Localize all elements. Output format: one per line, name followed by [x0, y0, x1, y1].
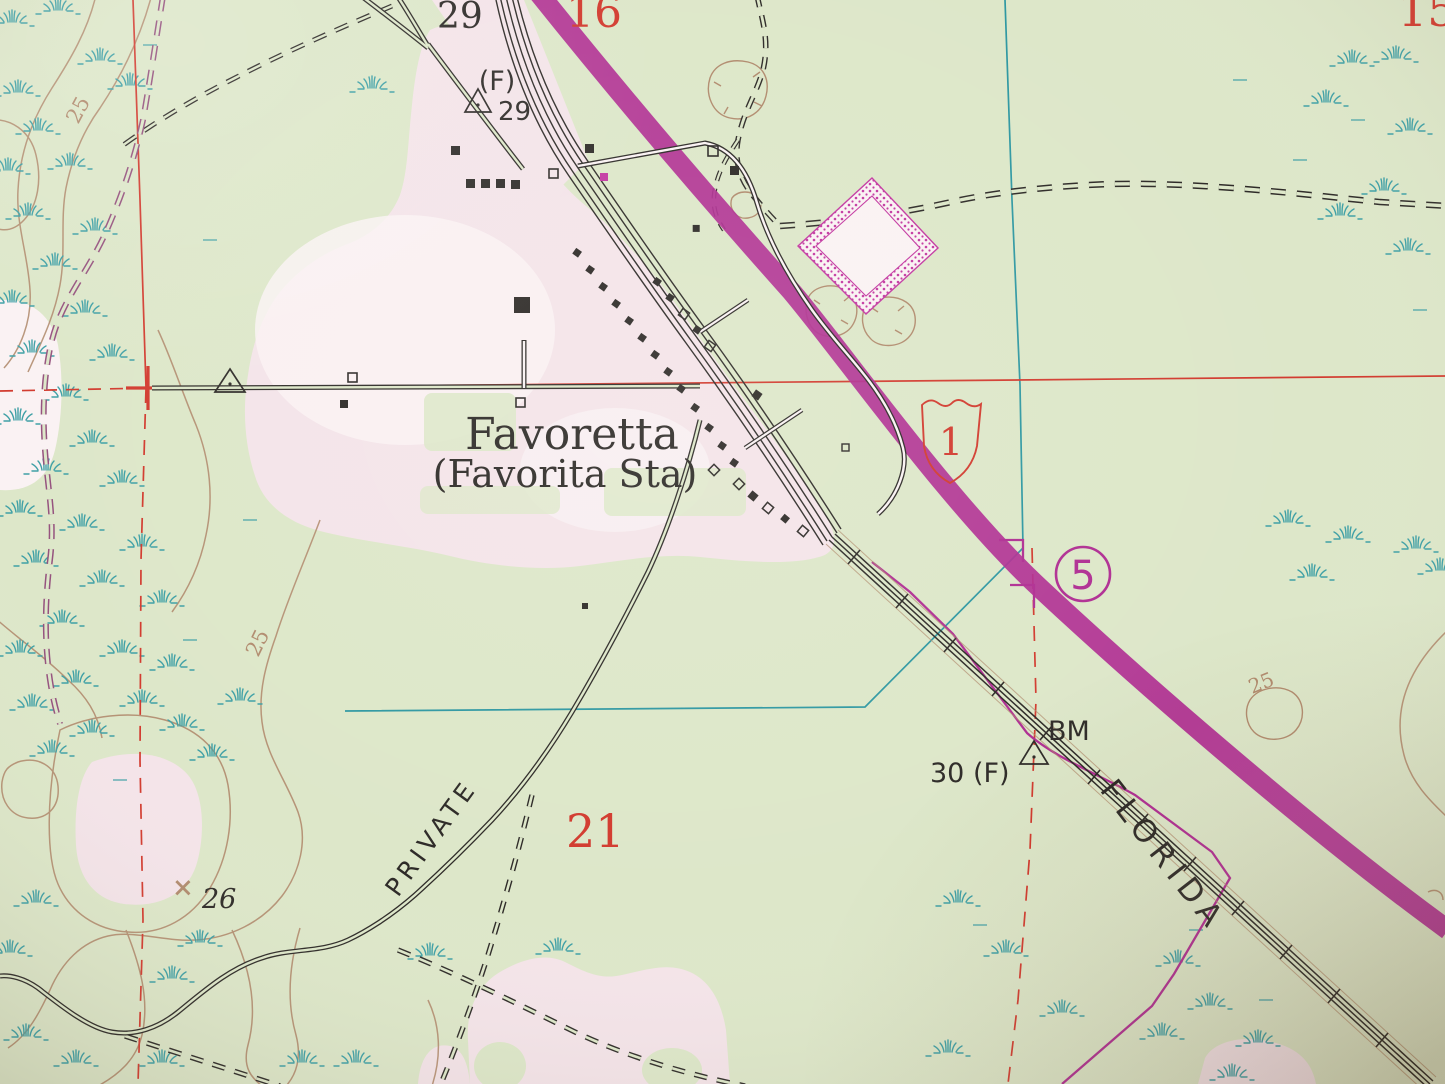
section-15: 15: [1398, 0, 1445, 37]
topo-map: 1 5 Favoretta (Favorita Sta) PRIVATE FLO…: [0, 0, 1445, 1084]
section-21: 21: [566, 804, 625, 858]
place-alt-label: (Favorita Sta): [433, 452, 698, 496]
state-route-number: 5: [1070, 553, 1095, 599]
benchmark-label: BM: [1048, 716, 1090, 747]
road-elevation-29: 29: [437, 0, 483, 37]
section-16: 16: [566, 0, 622, 38]
benchmark-elevation: 30 (F): [930, 758, 1010, 789]
spot-elevation-26: 26: [201, 884, 236, 915]
spot-elevation-mark: ×: [172, 873, 194, 903]
f-station-elevation: 29: [498, 97, 531, 127]
topo-map-photo: 1 5 Favoretta (Favorita Sta) PRIVATE FLO…: [0, 0, 1445, 1084]
us-route-number: 1: [939, 420, 963, 464]
f-station-label: (F): [479, 66, 516, 97]
